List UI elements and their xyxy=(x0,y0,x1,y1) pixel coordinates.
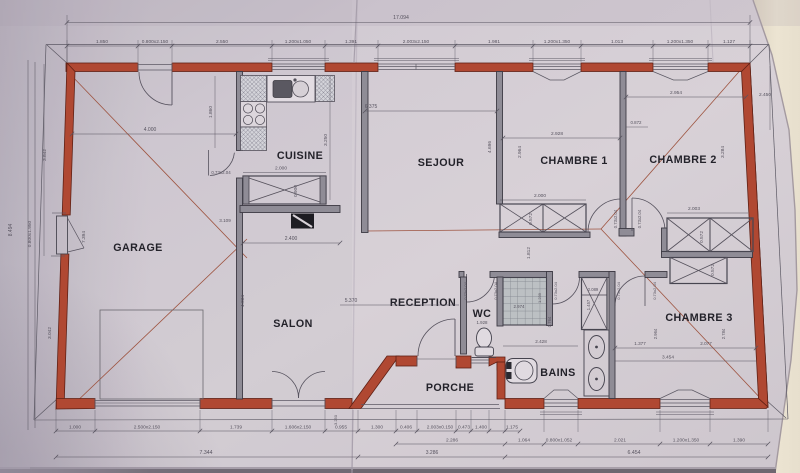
svg-text:2.400: 2.400 xyxy=(285,236,298,242)
svg-text:WC: WC xyxy=(473,308,492,320)
svg-text:1.200x1.050: 1.200x1.050 xyxy=(285,39,312,45)
svg-text:1.812: 1.812 xyxy=(526,247,532,259)
svg-text:2.928: 2.928 xyxy=(551,131,563,137)
svg-text:2.964: 2.964 xyxy=(517,146,523,158)
svg-text:CUISINE: CUISINE xyxy=(277,150,323,162)
svg-text:1.391: 1.391 xyxy=(345,39,357,45)
svg-text:0.800x2.150: 0.800x2.150 xyxy=(142,39,169,45)
svg-text:1.000: 1.000 xyxy=(69,425,81,431)
svg-text:0.73x2.04: 0.73x2.04 xyxy=(616,281,621,299)
svg-text:1.928: 1.928 xyxy=(477,320,489,325)
svg-text:BAINS: BAINS xyxy=(540,367,575,379)
svg-text:1.064: 1.064 xyxy=(518,438,530,444)
svg-text:0.73x2.04: 0.73x2.04 xyxy=(613,209,618,228)
svg-text:SALON: SALON xyxy=(273,318,313,330)
svg-text:0.73x2.04: 0.73x2.04 xyxy=(493,281,498,299)
svg-text:1.013: 1.013 xyxy=(611,39,623,45)
svg-text:2.003x2.150: 2.003x2.150 xyxy=(403,39,430,45)
svg-text:1.981: 1.981 xyxy=(488,39,500,45)
svg-text:2.450: 2.450 xyxy=(759,92,771,98)
svg-text:1.850: 1.850 xyxy=(96,39,108,45)
svg-text:CHAMBRE 3: CHAMBRE 3 xyxy=(665,312,732,324)
svg-text:3.109: 3.109 xyxy=(219,218,231,223)
svg-text:0.73x2.04: 0.73x2.04 xyxy=(211,170,231,175)
svg-text:0.73x2.04: 0.73x2.04 xyxy=(463,281,468,299)
svg-text:2.021: 2.021 xyxy=(614,438,626,444)
svg-text:0.900: 0.900 xyxy=(293,185,299,197)
svg-text:0.764: 0.764 xyxy=(547,316,552,327)
svg-text:SEJOUR: SEJOUR xyxy=(418,157,465,169)
svg-text:1.400: 1.400 xyxy=(475,425,487,431)
svg-text:0.473: 0.473 xyxy=(458,425,470,431)
svg-text:1.127: 1.127 xyxy=(723,39,735,45)
svg-text:6.375: 6.375 xyxy=(365,104,378,110)
svg-text:GARAGE: GARAGE xyxy=(113,242,162,254)
svg-text:4.000: 4.000 xyxy=(144,127,157,133)
svg-text:1.200x1.350: 1.200x1.350 xyxy=(667,39,694,45)
svg-text:2.964: 2.964 xyxy=(653,328,658,339)
svg-text:0.406: 0.406 xyxy=(400,425,412,431)
svg-text:PORCHE: PORCHE xyxy=(426,382,474,394)
svg-text:2.003: 2.003 xyxy=(688,206,700,212)
svg-text:5.370: 5.370 xyxy=(345,298,358,304)
svg-text:3.842: 3.842 xyxy=(42,149,48,161)
svg-text:1.377: 1.377 xyxy=(634,341,646,346)
svg-text:2.954: 2.954 xyxy=(670,90,682,96)
svg-text:3.454: 3.454 xyxy=(662,355,674,361)
svg-text:1.739: 1.739 xyxy=(230,425,242,431)
svg-text:1.300: 1.300 xyxy=(371,425,383,431)
svg-text:3.250: 3.250 xyxy=(323,134,329,146)
svg-text:3.286: 3.286 xyxy=(426,450,439,456)
svg-text:6.454: 6.454 xyxy=(628,450,641,456)
svg-text:2.000: 2.000 xyxy=(275,166,287,172)
svg-text:0.800x1.052: 0.800x1.052 xyxy=(546,438,573,444)
svg-text:4.034: 4.034 xyxy=(240,295,246,307)
svg-text:7.344: 7.344 xyxy=(200,450,213,456)
svg-text:1.606x2.150: 1.606x2.150 xyxy=(285,425,312,431)
svg-text:1.200x1.350: 1.200x1.350 xyxy=(544,39,571,45)
svg-text:3.284: 3.284 xyxy=(720,146,726,158)
svg-text:1.239: 1.239 xyxy=(537,292,542,303)
svg-text:0.73x2.04: 0.73x2.04 xyxy=(637,209,642,228)
svg-text:0.572: 0.572 xyxy=(699,231,705,243)
svg-text:7.394: 7.394 xyxy=(81,231,87,243)
svg-text:2.000: 2.000 xyxy=(534,193,546,199)
svg-text:2.428: 2.428 xyxy=(535,339,547,344)
svg-text:CHAMBRE 1: CHAMBRE 1 xyxy=(540,155,607,167)
svg-text:2.089: 2.089 xyxy=(588,287,599,292)
svg-text:3.042: 3.042 xyxy=(47,327,53,339)
svg-text:1.390: 1.390 xyxy=(733,438,745,444)
svg-text:2.003x0.150: 2.003x0.150 xyxy=(427,425,454,431)
svg-text:2.974: 2.974 xyxy=(514,304,526,309)
svg-text:0.73x2.04: 0.73x2.04 xyxy=(652,281,657,299)
svg-text:2.286: 2.286 xyxy=(446,438,458,444)
svg-text:CHAMBRE 2: CHAMBRE 2 xyxy=(649,154,716,166)
svg-text:17.094: 17.094 xyxy=(393,15,409,21)
svg-text:0.572: 0.572 xyxy=(710,264,716,276)
svg-text:RECEPTION: RECEPTION xyxy=(390,297,456,309)
svg-text:1.457: 1.457 xyxy=(586,299,591,310)
svg-text:1.175: 1.175 xyxy=(506,425,518,431)
svg-text:4.696: 4.696 xyxy=(487,141,493,153)
svg-text:3.250: 3.250 xyxy=(333,414,338,425)
svg-text:1.200x1.350: 1.200x1.350 xyxy=(673,438,700,444)
svg-text:0.872: 0.872 xyxy=(631,120,643,125)
svg-text:8.494: 8.494 xyxy=(8,224,14,237)
svg-text:1.860: 1.860 xyxy=(208,106,214,118)
svg-text:2.784: 2.784 xyxy=(721,328,726,339)
svg-text:2.077: 2.077 xyxy=(700,341,712,346)
svg-text:0.73x2.04: 0.73x2.04 xyxy=(553,281,558,299)
svg-text:0.800x1.950: 0.800x1.950 xyxy=(27,220,33,247)
svg-text:2.500x2.150: 2.500x2.150 xyxy=(134,425,161,431)
svg-text:2.550: 2.550 xyxy=(216,39,228,45)
svg-text:0.572: 0.572 xyxy=(528,213,534,225)
